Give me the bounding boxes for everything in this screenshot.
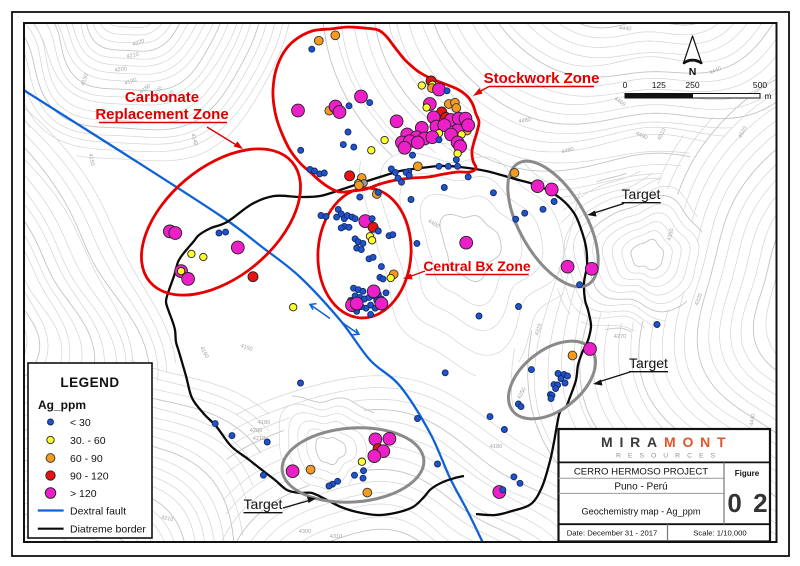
svg-text:30. - 60: 30. - 60	[70, 435, 106, 447]
svg-text:4300: 4300	[299, 529, 311, 535]
svg-text:60 - 90: 60 - 90	[70, 453, 103, 465]
svg-text:500: 500	[753, 80, 767, 90]
svg-text:4180: 4180	[258, 420, 270, 426]
svg-text:Carbonate: Carbonate	[125, 89, 199, 106]
svg-text:Date: December 31 - 2017: Date: December 31 - 2017	[567, 529, 658, 538]
svg-text:CERRO HERMOSO PROJECT: CERRO HERMOSO PROJECT	[574, 467, 708, 478]
svg-text:MIRAMONT: MIRAMONT	[601, 434, 732, 450]
svg-text:LEGEND: LEGEND	[60, 375, 119, 390]
svg-text:4270: 4270	[614, 334, 626, 340]
svg-text:Target: Target	[629, 355, 668, 371]
svg-text:90 - 120: 90 - 120	[70, 471, 109, 483]
svg-text:N: N	[689, 66, 697, 78]
svg-text:RESOURCES: RESOURCES	[616, 453, 722, 460]
svg-text:m: m	[765, 91, 772, 101]
svg-text:Diatreme border: Diatreme border	[70, 524, 146, 536]
svg-text:< 30: < 30	[70, 417, 91, 429]
svg-text:Central Bx Zone: Central Bx Zone	[423, 258, 531, 274]
svg-text:> 120: > 120	[70, 488, 97, 500]
svg-text:Geochemistry map - Ag_ppm: Geochemistry map - Ag_ppm	[582, 507, 701, 517]
svg-text:4440: 4440	[619, 25, 632, 32]
svg-text:Target: Target	[244, 496, 283, 512]
svg-text:250: 250	[685, 80, 699, 90]
svg-text:4310: 4310	[330, 534, 342, 540]
svg-text:4200: 4200	[250, 428, 262, 434]
svg-text:Scale: 1/10,000: Scale: 1/10,000	[693, 529, 746, 538]
svg-text:4210: 4210	[253, 436, 265, 442]
svg-text:0 2: 0 2	[727, 488, 769, 518]
svg-text:Ag_ppm: Ag_ppm	[38, 398, 86, 412]
svg-text:Stockwork Zone: Stockwork Zone	[484, 70, 600, 87]
svg-text:Replacement Zone: Replacement Zone	[95, 106, 228, 123]
svg-text:Target: Target	[622, 186, 661, 202]
svg-text:Dextral fault: Dextral fault	[70, 506, 126, 518]
svg-text:4180: 4180	[490, 444, 502, 450]
svg-text:125: 125	[652, 80, 666, 90]
svg-text:Puno - Perú: Puno - Perú	[614, 482, 667, 493]
svg-text:Figure: Figure	[735, 469, 760, 478]
svg-text:0: 0	[623, 80, 628, 90]
